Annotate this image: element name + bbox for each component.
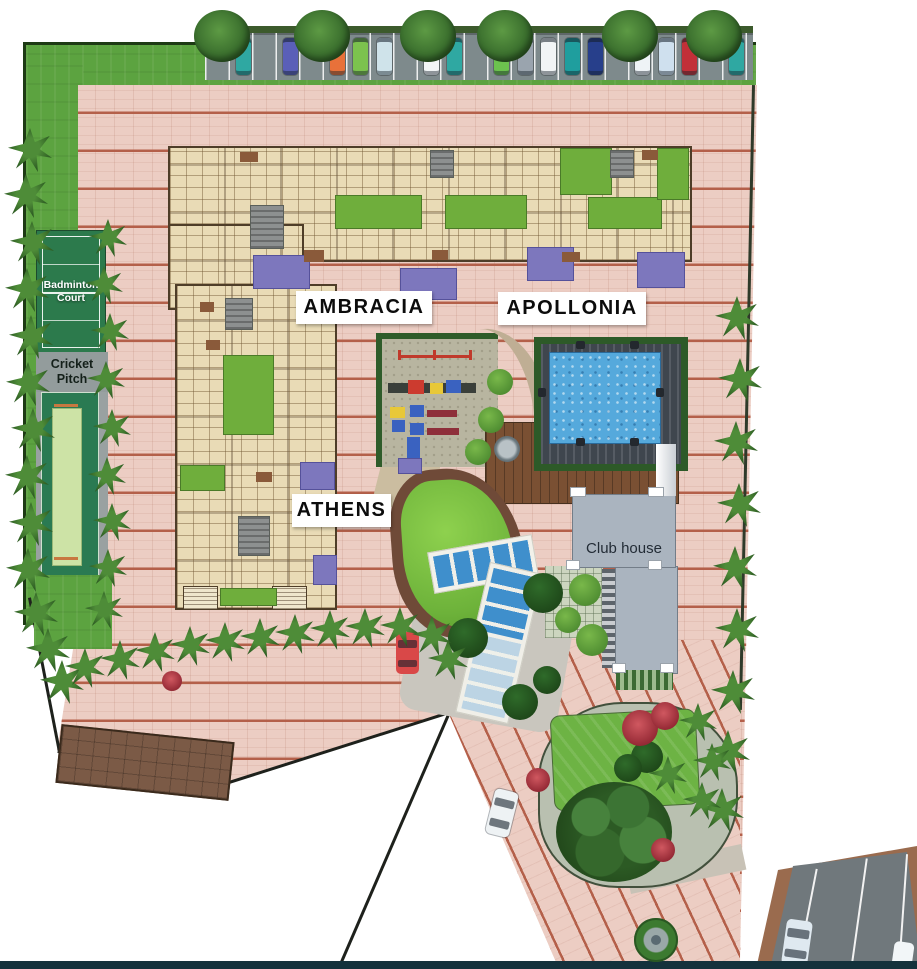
tree-canopy-icon bbox=[477, 10, 533, 62]
red-car bbox=[396, 632, 419, 674]
flower-bed-icon bbox=[162, 671, 182, 691]
entrance-porch bbox=[272, 586, 307, 610]
cricket-pitch-strip bbox=[52, 408, 82, 566]
balcony-patch bbox=[253, 255, 310, 289]
play-equipment bbox=[427, 410, 457, 417]
courtyard-lawn bbox=[445, 195, 527, 229]
play-equipment bbox=[469, 350, 472, 360]
balcony-patch bbox=[313, 555, 337, 585]
parked-car bbox=[659, 38, 674, 75]
tree-canopy-icon bbox=[686, 10, 742, 62]
clubhouse: Club house bbox=[572, 494, 676, 568]
courtyard-lawn bbox=[657, 148, 689, 200]
label-apollonia-text: APOLLONIA bbox=[506, 297, 637, 320]
bush-icon bbox=[523, 573, 563, 613]
stair-core bbox=[250, 205, 284, 249]
parked-car bbox=[588, 38, 603, 75]
bush-icon bbox=[555, 607, 581, 633]
stair-core bbox=[610, 150, 634, 178]
label-ambracia: AMBRACIA bbox=[296, 291, 432, 324]
play-equipment bbox=[390, 407, 405, 418]
bush-icon bbox=[533, 666, 561, 694]
stair-core bbox=[238, 516, 270, 556]
courtyard-lawn bbox=[588, 197, 662, 229]
courtyard-lawn bbox=[180, 465, 225, 491]
parked-car bbox=[541, 38, 556, 75]
shrub-icon bbox=[478, 407, 504, 433]
label-athens: ATHENS bbox=[292, 494, 391, 527]
pool-ladder-icon bbox=[630, 341, 639, 349]
pool-ladder-icon bbox=[538, 388, 546, 397]
bush-icon bbox=[614, 754, 642, 782]
play-equipment bbox=[427, 428, 459, 435]
courtyard-lawn bbox=[223, 355, 274, 435]
bush-icon bbox=[502, 684, 538, 720]
bush-icon bbox=[576, 624, 608, 656]
courtyard-lawn bbox=[560, 148, 612, 195]
tree-canopy-icon bbox=[294, 10, 350, 62]
canopy-square bbox=[570, 487, 586, 497]
bush-icon bbox=[448, 618, 488, 658]
round-fountain bbox=[634, 918, 678, 962]
deck-fountain-icon bbox=[494, 436, 520, 462]
tree-canopy-icon bbox=[194, 10, 250, 62]
shrub-icon bbox=[487, 369, 513, 395]
stair-core bbox=[225, 298, 253, 330]
boundary-line bbox=[340, 712, 451, 963]
canopy-square bbox=[612, 663, 626, 673]
cricket-pitch-label: Cricket Pitch bbox=[36, 352, 108, 392]
label-apollonia: APOLLONIA bbox=[498, 292, 646, 325]
pool-ladder-icon bbox=[576, 341, 585, 349]
pool-ladder-icon bbox=[576, 438, 585, 446]
roof-accent bbox=[562, 252, 580, 262]
clubhouse-wing bbox=[615, 566, 678, 674]
clubhouse-pergola bbox=[616, 670, 673, 690]
courtyard-lawn bbox=[335, 195, 422, 229]
flower-bed-icon bbox=[651, 702, 679, 730]
roof-accent bbox=[304, 250, 324, 262]
play-equipment bbox=[392, 420, 405, 432]
stair-core bbox=[430, 150, 454, 178]
parked-car bbox=[353, 38, 368, 75]
balcony-patch bbox=[637, 252, 685, 288]
flower-bed-icon bbox=[526, 768, 550, 792]
play-equipment bbox=[408, 380, 424, 394]
clubhouse-stairs bbox=[602, 569, 616, 668]
balcony-patch bbox=[300, 462, 335, 490]
play-equipment bbox=[446, 380, 461, 393]
play-equipment bbox=[410, 423, 424, 435]
flower-bed-icon bbox=[651, 838, 675, 862]
bottom-border-bar bbox=[0, 961, 917, 969]
pool-ladder-icon bbox=[656, 388, 664, 397]
canopy-square bbox=[660, 663, 674, 673]
play-equipment bbox=[398, 350, 401, 360]
tree-canopy-icon bbox=[602, 10, 658, 62]
play-equipment bbox=[410, 405, 424, 417]
roof-accent bbox=[642, 150, 658, 160]
site-plan-canvas: Badminton Court Cricket Pitch Club house bbox=[0, 0, 917, 969]
canopy-square bbox=[566, 560, 580, 570]
parked-car bbox=[565, 38, 580, 75]
courtyard-lawn bbox=[220, 588, 277, 606]
roof-accent bbox=[240, 152, 258, 162]
roof-accent bbox=[206, 340, 220, 350]
canopy-square bbox=[648, 487, 664, 497]
wicket-crease bbox=[54, 404, 78, 407]
shrub-icon bbox=[465, 439, 491, 465]
island-bush-cluster bbox=[556, 782, 672, 882]
pool-ladder-icon bbox=[630, 438, 639, 446]
tree-canopy-icon bbox=[400, 10, 456, 62]
pool-water bbox=[549, 352, 661, 444]
roof-accent bbox=[256, 472, 272, 482]
label-ambracia-text: AMBRACIA bbox=[304, 296, 425, 319]
fountain-center bbox=[651, 935, 661, 945]
play-equipment bbox=[430, 383, 443, 394]
wicket-crease bbox=[54, 557, 78, 560]
play-equipment bbox=[433, 350, 436, 360]
parked-car bbox=[377, 38, 392, 75]
roof-accent bbox=[200, 302, 214, 312]
label-athens-text: ATHENS bbox=[297, 499, 387, 522]
canopy-square bbox=[648, 560, 662, 570]
roof-accent bbox=[432, 250, 448, 260]
entrance-porch bbox=[183, 586, 218, 610]
balcony-patch bbox=[398, 458, 422, 474]
clubhouse-label: Club house bbox=[586, 540, 662, 557]
bush-icon bbox=[569, 574, 601, 606]
access-road bbox=[750, 840, 917, 969]
